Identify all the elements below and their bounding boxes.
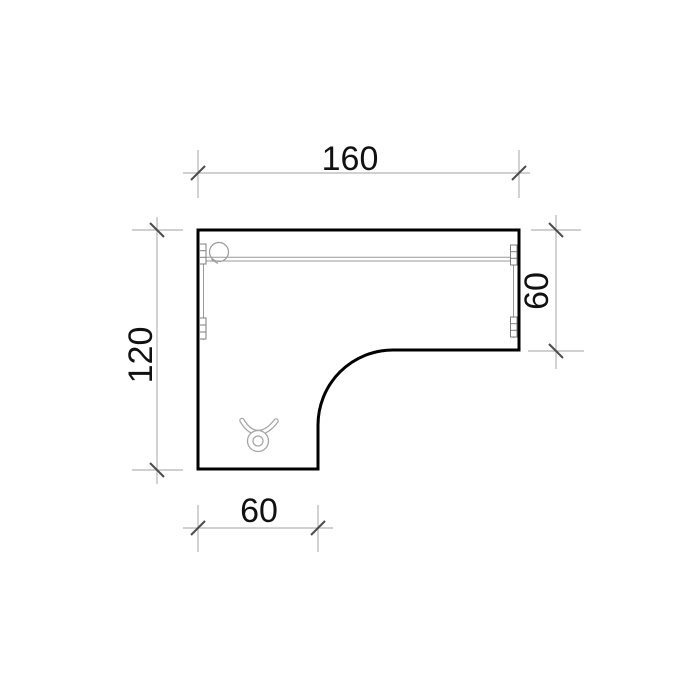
drawing-canvas: 160 120 60 60 bbox=[0, 0, 700, 700]
dimension-right-depth: 60 bbox=[518, 215, 584, 369]
dimension-label-left-depth: 120 bbox=[122, 327, 160, 384]
dimension-label-bottom-leg-width: 60 bbox=[240, 492, 278, 530]
dimension-label-top-width: 160 bbox=[322, 140, 379, 178]
mounting-bracket-icon bbox=[511, 245, 518, 265]
dimension-bottom-leg-width: 60 bbox=[183, 492, 333, 552]
desk-technical-drawing: 160 120 60 60 bbox=[0, 0, 700, 700]
dimension-left-depth: 120 bbox=[122, 217, 183, 484]
mounting-bracket-icon bbox=[511, 317, 518, 337]
dimension-label-right-depth: 60 bbox=[518, 272, 556, 310]
mounting-bracket-icon bbox=[200, 318, 207, 339]
dimension-top-width: 160 bbox=[183, 140, 530, 198]
mounting-bracket-icon bbox=[200, 244, 207, 264]
desk-outline bbox=[198, 230, 519, 469]
